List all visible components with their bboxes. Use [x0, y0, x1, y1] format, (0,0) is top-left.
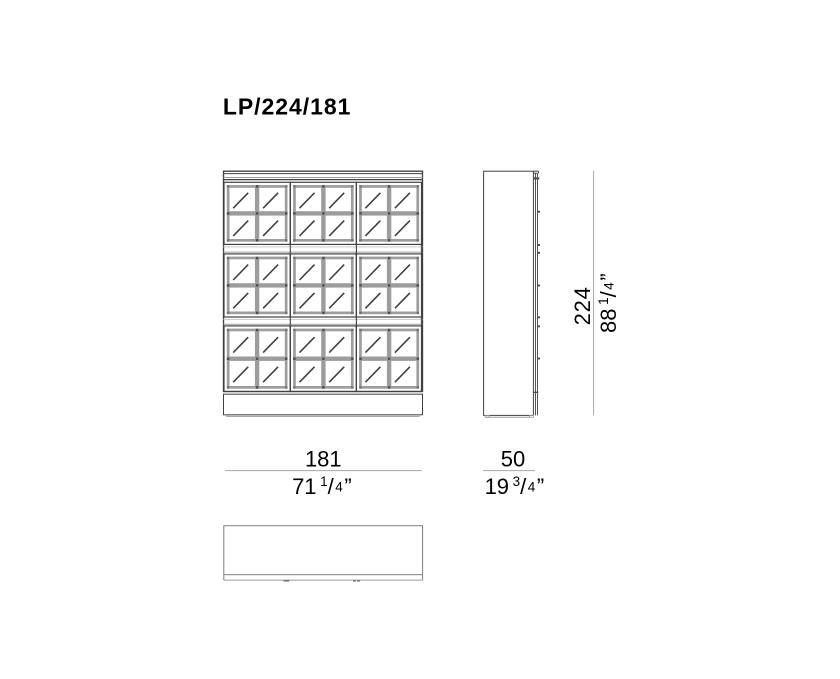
- svg-text:50: 50: [501, 446, 525, 471]
- svg-text:224: 224: [570, 286, 595, 325]
- svg-text:LP/224/181: LP/224/181: [223, 94, 351, 120]
- svg-text:181: 181: [305, 446, 342, 471]
